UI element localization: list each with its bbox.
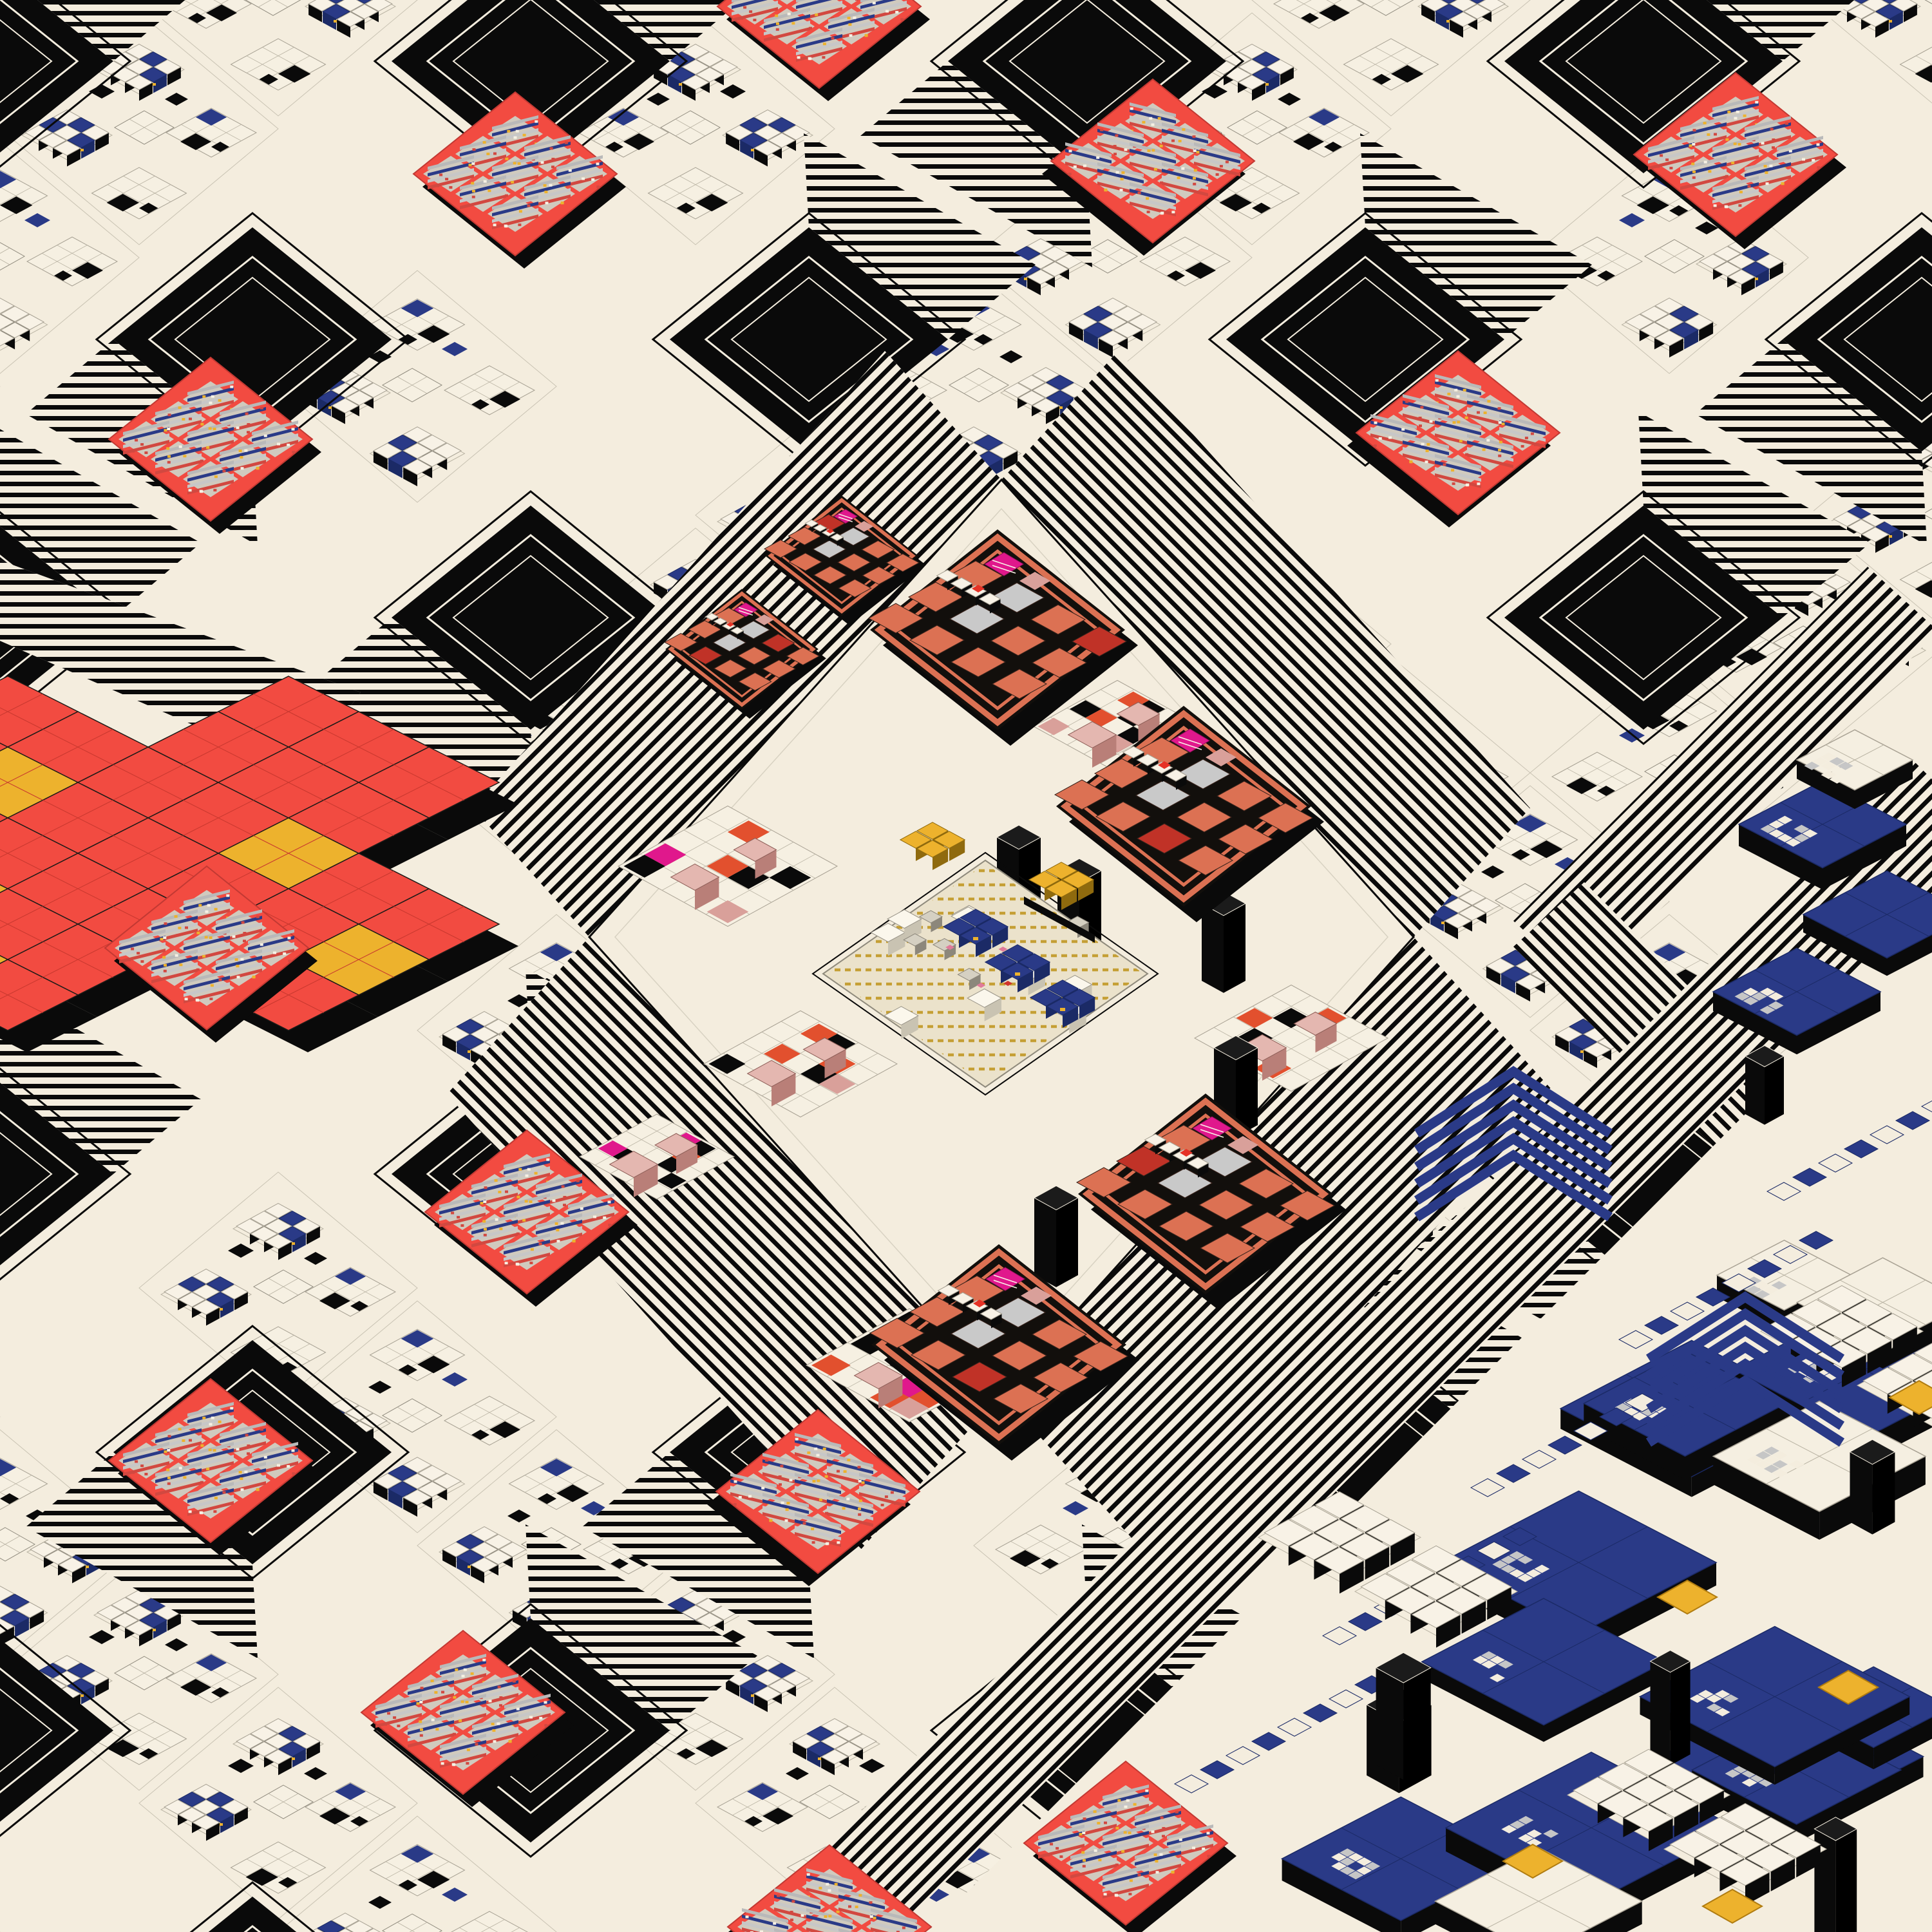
isometric-artwork (0, 0, 1932, 1932)
black-tower (1850, 1439, 1895, 1534)
black-tower (1034, 1186, 1078, 1287)
black-tower (1651, 1651, 1690, 1766)
artwork-canvas (0, 0, 1932, 1932)
black-tower (1745, 1046, 1784, 1125)
black-tower (1376, 1653, 1431, 1779)
black-tower (1814, 1817, 1857, 1932)
